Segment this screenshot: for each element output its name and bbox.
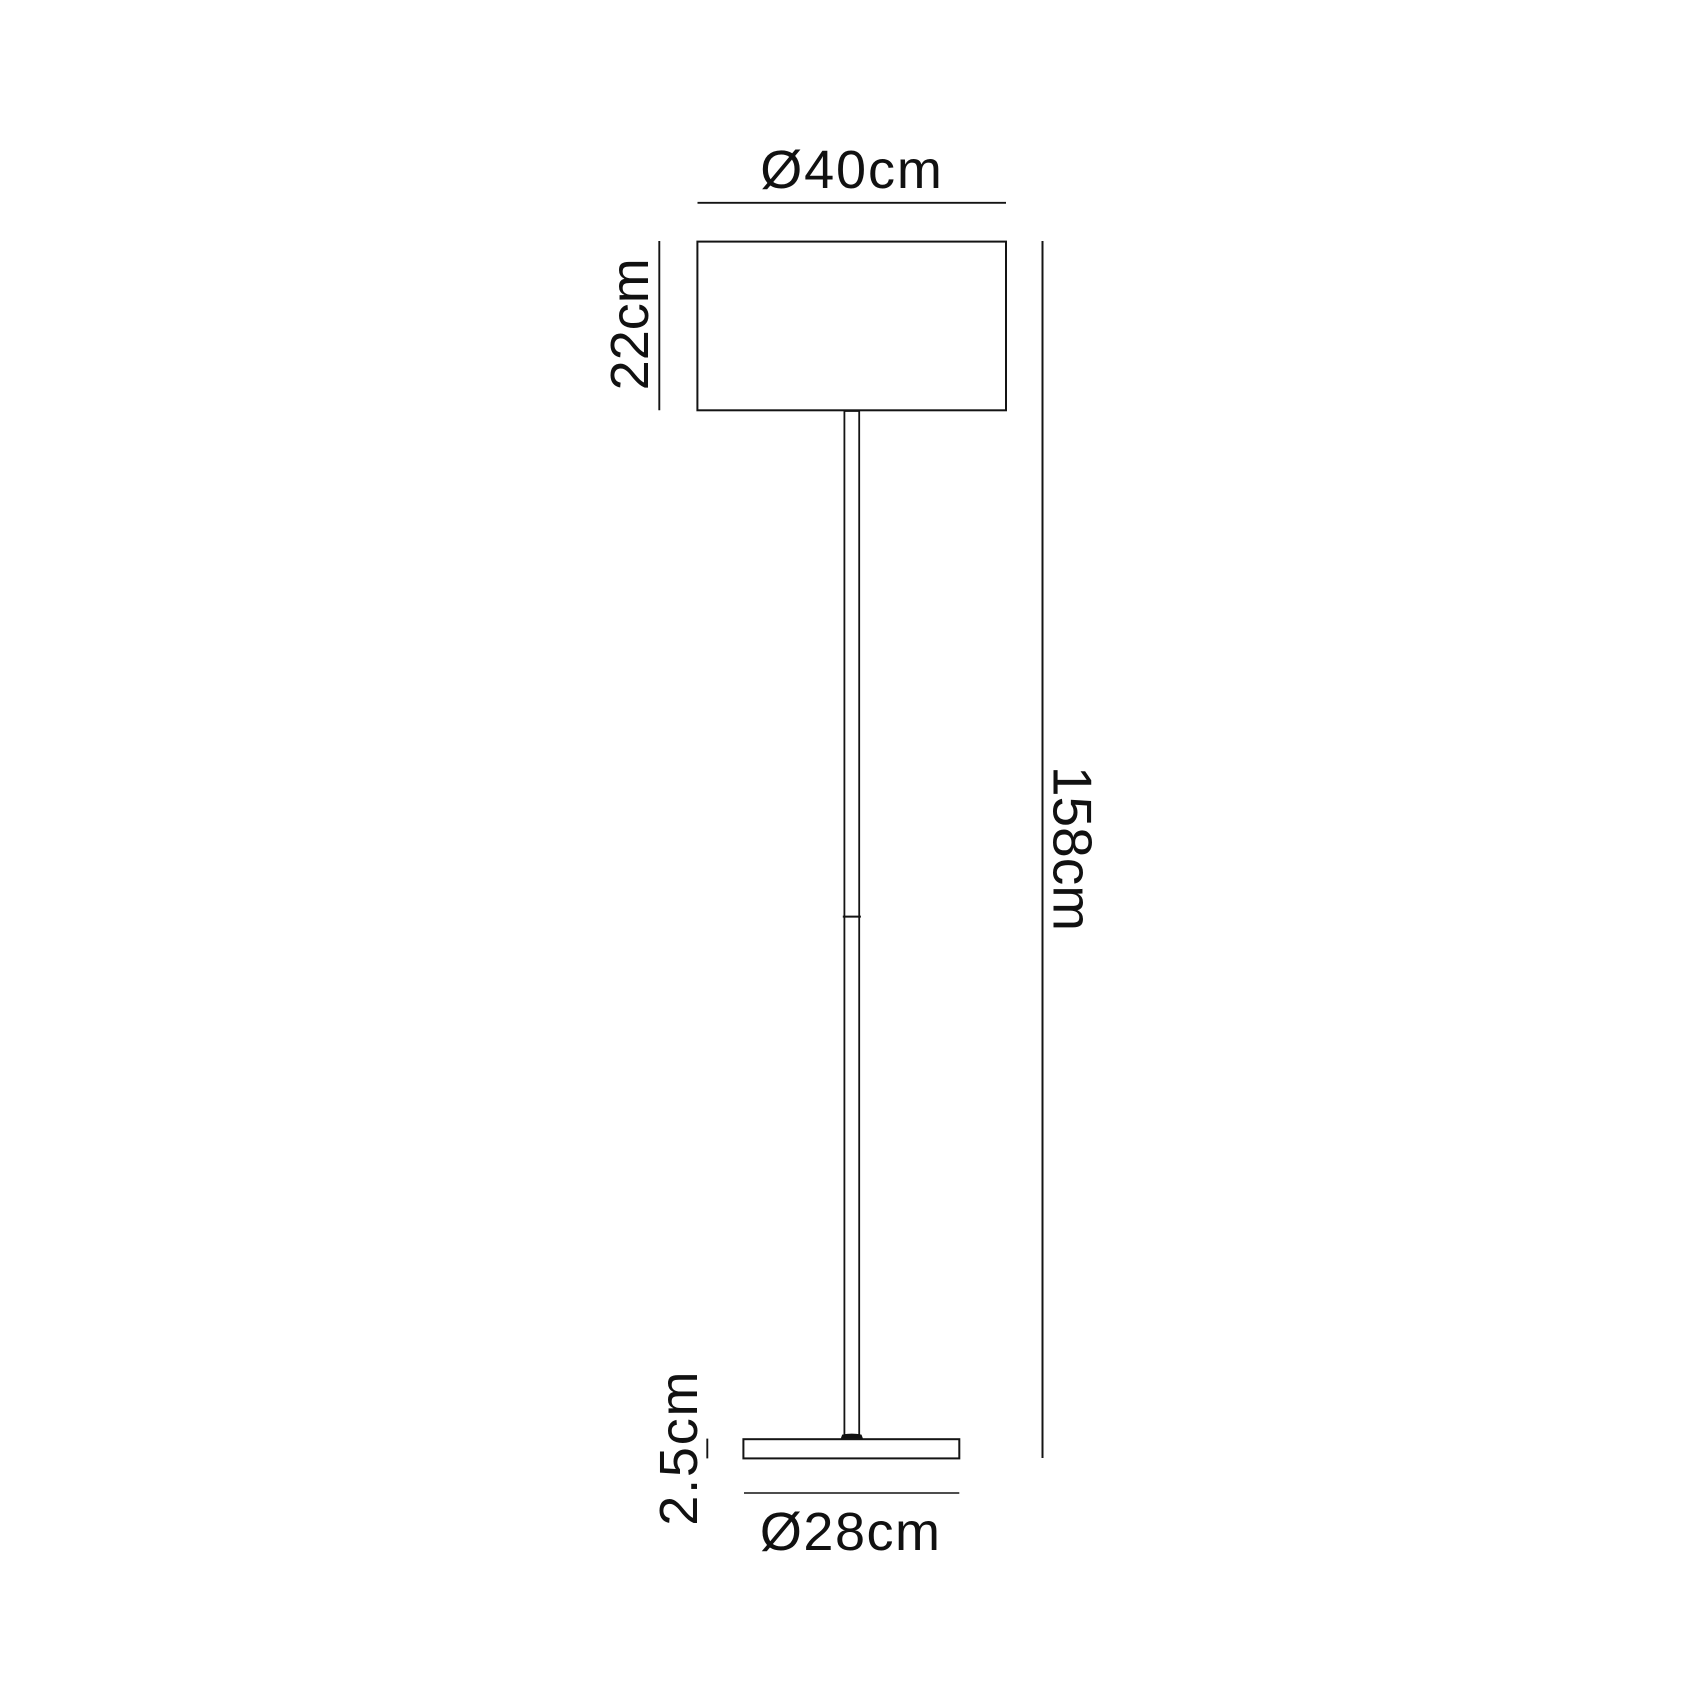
svg-text:2.5cm: 2.5cm: [649, 1370, 709, 1526]
svg-text:22cm: 22cm: [600, 258, 660, 390]
svg-text:158cm: 158cm: [1042, 766, 1104, 931]
svg-text:Ø40cm: Ø40cm: [760, 140, 944, 200]
svg-text:Ø28cm: Ø28cm: [760, 1502, 942, 1562]
